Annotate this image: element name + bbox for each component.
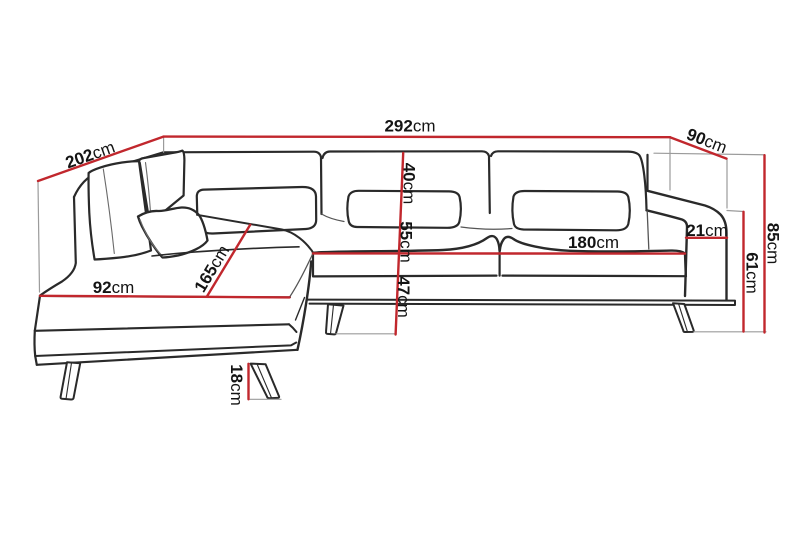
svg-text:292cm: 292cm: [384, 117, 435, 136]
svg-text:180cm: 180cm: [568, 233, 619, 252]
svg-text:18cm: 18cm: [227, 364, 246, 406]
svg-text:40cm: 40cm: [400, 163, 419, 205]
svg-text:21cm: 21cm: [686, 221, 728, 240]
svg-text:61cm: 61cm: [743, 252, 762, 294]
svg-text:92cm: 92cm: [93, 278, 135, 297]
svg-text:55cm: 55cm: [397, 221, 416, 263]
svg-text:47cm: 47cm: [394, 276, 413, 318]
svg-text:85cm: 85cm: [764, 223, 783, 265]
